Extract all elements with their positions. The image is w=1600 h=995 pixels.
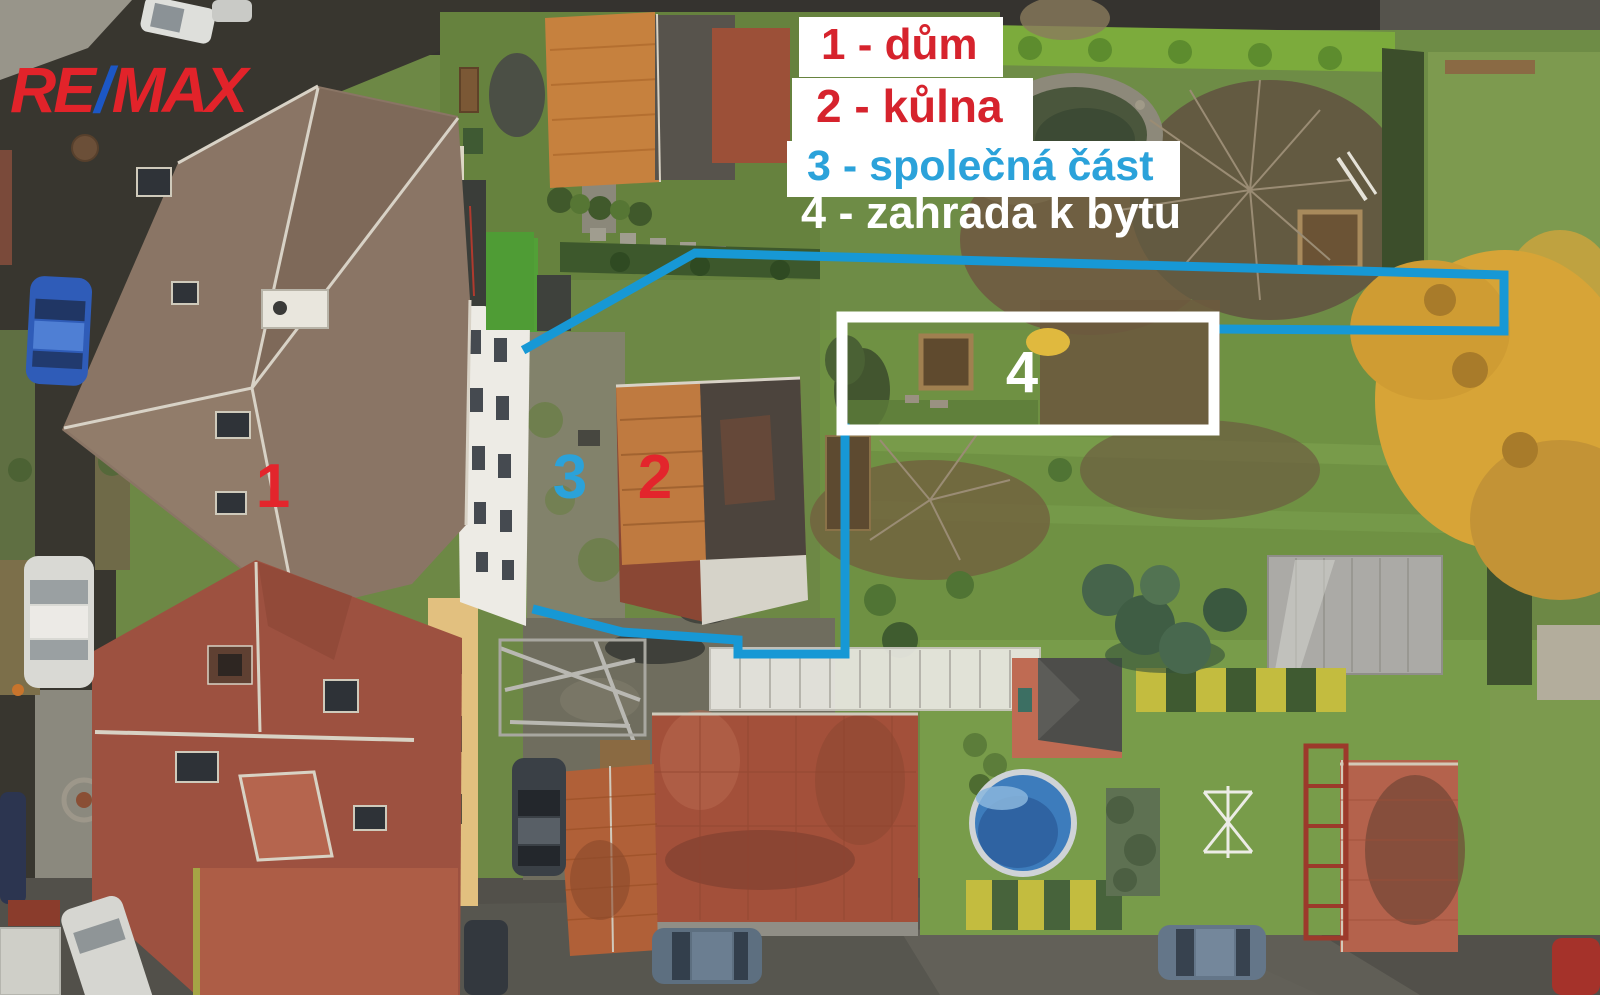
legend-item-1: 1 - dům <box>799 17 1003 77</box>
legend-item-2: 2 - kůlna <box>792 78 1033 142</box>
screenshot-root: 1 2 3 4 1 - dům 2 - kůlna 3 - společná č… <box>0 0 1600 995</box>
logo-slash-icon: / <box>93 54 112 126</box>
logo-max: MAX <box>112 54 245 126</box>
property-boundary-upper <box>527 253 1504 348</box>
legend-item-4: 4 - zahrada k bytu <box>801 188 1181 238</box>
marker-2-kulna: 2 <box>638 447 672 509</box>
marker-1-dum: 1 <box>256 456 290 518</box>
marker-4-zahrada: 4 <box>1006 344 1038 402</box>
logo-re: RE <box>10 54 93 126</box>
remax-logo: RE/MAX <box>10 58 245 122</box>
marker-3-spolecna: 3 <box>553 447 587 509</box>
